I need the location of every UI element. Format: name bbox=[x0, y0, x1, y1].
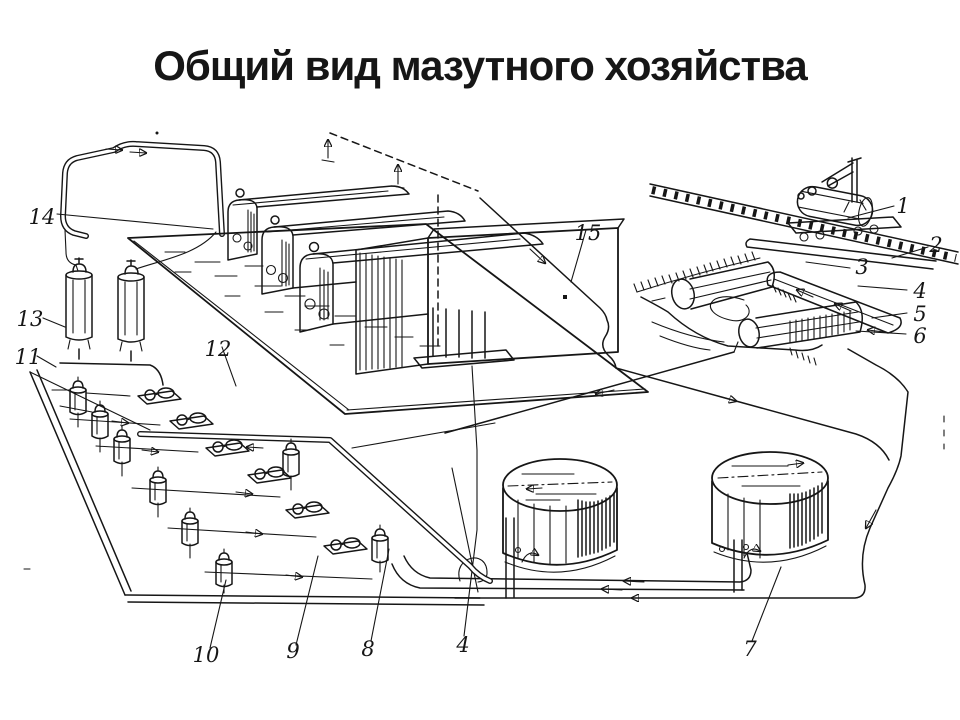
service-tanks bbox=[60, 258, 163, 385]
callout-4: 4 bbox=[912, 279, 926, 303]
callout-11: 11 bbox=[15, 345, 42, 369]
recirculation-pipe bbox=[63, 144, 222, 271]
buried-tank-2 bbox=[734, 302, 862, 352]
slide: Общий вид мазутного хозяйства bbox=[0, 0, 960, 720]
callout-12: 12 bbox=[205, 337, 232, 361]
callout-5: 5 bbox=[913, 302, 926, 326]
main-pipelines bbox=[392, 198, 908, 636]
unloading-trough bbox=[746, 239, 936, 269]
boiler-unit-2 bbox=[262, 211, 465, 294]
callout-8: 8 bbox=[361, 637, 374, 661]
drainage-channel bbox=[710, 272, 901, 333]
callout-4b: 4 bbox=[455, 633, 469, 657]
boiler-unit-3 bbox=[300, 233, 543, 332]
callout-7: 7 bbox=[743, 637, 757, 661]
callout-14: 14 bbox=[29, 205, 56, 229]
storage-tank-right bbox=[712, 452, 828, 592]
pump-station bbox=[30, 370, 495, 605]
callout-9: 9 bbox=[286, 639, 299, 663]
callout-13: 13 bbox=[17, 307, 44, 331]
foundation-slab bbox=[128, 224, 648, 414]
boiler-house bbox=[128, 133, 648, 414]
callout-3: 3 bbox=[855, 255, 868, 279]
storage-tank-left bbox=[503, 459, 617, 598]
callout-2: 2 bbox=[928, 233, 942, 257]
callout-10: 10 bbox=[193, 643, 220, 667]
callout-6: 6 bbox=[913, 324, 926, 348]
callout-1: 1 bbox=[896, 194, 909, 218]
drain-riser-tower bbox=[798, 158, 866, 212]
fuel-oil-facility-diagram: 1 2 3 4 5 6 7 8 9 10 11 12 13 14 15 4 bbox=[0, 0, 960, 720]
rail-tank-car bbox=[788, 158, 901, 241]
callout-15: 15 bbox=[575, 221, 602, 245]
